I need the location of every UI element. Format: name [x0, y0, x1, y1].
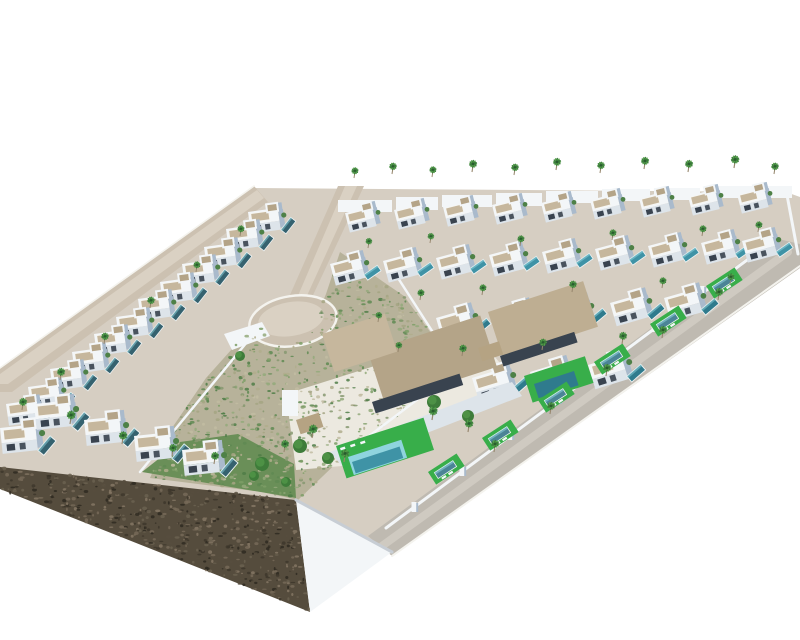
texture-dot [255, 428, 257, 430]
texture-dot [309, 341, 312, 343]
texture-dot [263, 477, 266, 480]
texture-dot [171, 490, 175, 491]
texture-dot [247, 524, 249, 526]
texture-dot [131, 500, 135, 503]
texture-dot [258, 579, 262, 580]
texture-dot [91, 503, 95, 506]
texture-dot [82, 484, 85, 486]
texture-dot [339, 312, 342, 315]
texture-dot [294, 372, 296, 375]
texture-dot [246, 434, 250, 436]
texture-dot [300, 391, 302, 392]
texture-dot [211, 520, 213, 523]
texture-dot [314, 382, 317, 383]
texture-dot [208, 557, 210, 559]
texture-dot [232, 412, 235, 414]
texture-dot [265, 522, 268, 524]
texture-dot [236, 458, 239, 461]
texture-dot [337, 314, 339, 316]
texture-dot [251, 395, 254, 397]
texture-dot [359, 286, 362, 289]
texture-dot [402, 405, 406, 406]
texture-dot [194, 479, 196, 481]
texture-dot [251, 413, 256, 416]
texture-dot [415, 312, 418, 313]
texture-dot [251, 505, 256, 507]
palm-crown [214, 455, 217, 458]
texture-dot [260, 535, 265, 538]
texture-dot [254, 552, 258, 553]
texture-dot [243, 442, 247, 445]
texture-dot [256, 359, 258, 360]
texture-dot [208, 377, 210, 379]
texture-dot [66, 508, 68, 512]
texture-dot [243, 404, 245, 407]
texture-dot [130, 523, 134, 526]
texture-dot [183, 520, 186, 523]
texture-dot [235, 522, 239, 524]
texture-dot [275, 511, 277, 514]
texture-dot [377, 291, 380, 293]
texture-dot [194, 518, 197, 520]
texture-dot [285, 561, 288, 563]
texture-dot [289, 492, 291, 493]
texture-dot [204, 407, 208, 410]
texture-dot [377, 424, 379, 426]
texture-dot [190, 406, 192, 408]
texture-dot [291, 556, 294, 558]
texture-dot [141, 483, 145, 484]
texture-dot [84, 490, 89, 493]
palm-crown [472, 163, 475, 166]
texture-dot [180, 534, 184, 537]
texture-dot [256, 395, 259, 398]
texture-dot [218, 535, 223, 537]
texture-dot [242, 375, 245, 378]
texture-dot [308, 411, 310, 414]
texture-dot [257, 423, 262, 426]
texture-dot [232, 417, 234, 419]
texture-dot [17, 485, 19, 486]
texture-dot [67, 506, 71, 507]
texture-dot [68, 474, 72, 477]
texture-dot [338, 310, 342, 312]
texture-dot [230, 560, 233, 563]
texture-dot [24, 496, 28, 498]
texture-dot [340, 395, 345, 397]
texture-dot [404, 333, 408, 335]
texture-dot [266, 383, 270, 384]
texture-dot [128, 498, 133, 499]
texture-dot [233, 371, 236, 374]
tree-highlight [256, 458, 265, 467]
texture-dot [234, 478, 236, 479]
palm-crown [122, 434, 125, 437]
texture-dot [337, 292, 340, 295]
texture-dot [266, 438, 270, 441]
texture-dot [256, 437, 260, 438]
texture-dot [358, 281, 361, 284]
texture-dot [159, 493, 161, 495]
texture-dot [247, 423, 250, 426]
texture-dot [177, 558, 179, 560]
texture-dot [282, 360, 285, 362]
texture-dot [242, 472, 246, 475]
texture-dot [233, 500, 235, 503]
palm-crown [432, 169, 434, 171]
texture-dot [163, 501, 166, 504]
texture-dot [153, 470, 155, 472]
texture-dot [225, 434, 227, 437]
texture-dot [193, 476, 196, 478]
texture-dot [85, 521, 88, 523]
texture-dot [240, 434, 243, 437]
texture-dot [213, 499, 218, 501]
pillar-body [412, 502, 417, 512]
texture-dot [247, 395, 249, 397]
texture-dot [277, 359, 280, 361]
texture-dot [297, 542, 301, 544]
texture-dot [244, 578, 247, 579]
texture-dot [272, 560, 274, 561]
texture-dot [415, 325, 419, 327]
palm-crown [550, 405, 553, 408]
texture-dot [264, 345, 267, 346]
texture-dot [215, 543, 217, 546]
texture-dot [191, 511, 196, 514]
texture-dot [13, 471, 18, 473]
palm-crown [482, 287, 484, 289]
texture-dot [233, 545, 235, 547]
texture-dot [159, 541, 163, 542]
texture-dot [197, 431, 200, 432]
texture-dot [291, 593, 293, 596]
texture-dot [261, 513, 264, 515]
texture-dot [21, 489, 24, 492]
texture-dot [295, 555, 299, 557]
texture-dot [185, 499, 187, 501]
texture-dot [244, 560, 246, 563]
texture-dot [131, 482, 136, 485]
texture-dot [323, 428, 326, 430]
texture-dot [147, 510, 151, 513]
palm-crown [468, 422, 471, 425]
texture-dot [197, 506, 199, 507]
texture-dot [318, 430, 321, 432]
texture-dot [75, 477, 77, 480]
texture-dot [1, 488, 4, 490]
texture-dot [267, 352, 270, 354]
texture-dot [32, 484, 36, 487]
texture-dot [198, 404, 202, 405]
texture-dot [241, 417, 245, 419]
texture-dot [314, 405, 317, 408]
texture-dot [278, 403, 282, 405]
texture-dot [87, 513, 92, 515]
texture-dot [358, 303, 360, 305]
texture-dot [9, 491, 11, 495]
villa-window [140, 452, 149, 459]
texture-dot [196, 549, 198, 552]
texture-dot [10, 487, 15, 489]
texture-dot [259, 401, 264, 404]
texture-dot [193, 505, 196, 507]
palm-crown [284, 443, 287, 446]
texture-dot [236, 559, 240, 560]
texture-dot [332, 316, 334, 317]
texture-dot [282, 388, 284, 390]
texture-dot [356, 290, 360, 291]
texture-dot [257, 530, 259, 532]
texture-dot [79, 489, 82, 490]
texture-dot [271, 437, 275, 440]
texture-dot [153, 538, 156, 540]
texture-dot [232, 364, 235, 367]
texture-dot [251, 519, 254, 521]
texture-dot [215, 560, 218, 562]
texture-dot [400, 304, 403, 307]
texture-dot [378, 421, 381, 423]
texture-dot [265, 540, 268, 543]
texture-dot [238, 583, 242, 585]
texture-dot [304, 471, 307, 472]
texture-dot [272, 571, 274, 575]
texture-dot [277, 585, 280, 587]
texture-dot [269, 449, 271, 450]
texture-dot [263, 432, 265, 434]
garden-tree [235, 351, 245, 361]
texture-dot [183, 493, 188, 497]
villa-upper-roof [91, 344, 101, 351]
texture-dot [327, 467, 329, 468]
texture-dot [114, 517, 118, 519]
villa-window [243, 241, 249, 247]
texture-dot [259, 328, 263, 330]
palm-crown [622, 335, 625, 338]
texture-dot [261, 418, 264, 421]
texture-dot [217, 387, 221, 390]
texture-dot [175, 470, 178, 472]
palm-crown [432, 410, 435, 413]
texture-dot [312, 460, 316, 461]
texture-dot [386, 297, 390, 300]
texture-dot [279, 453, 283, 454]
texture-dot [323, 367, 327, 369]
texture-dot [199, 474, 202, 477]
texture-dot [211, 554, 216, 556]
texture-dot [253, 494, 255, 497]
texture-dot [306, 379, 308, 382]
texture-dot [249, 415, 252, 418]
texture-dot [249, 556, 252, 558]
texture-dot [399, 407, 402, 409]
texture-dot [270, 431, 273, 433]
texture-dot [234, 492, 238, 495]
texture-dot [274, 445, 278, 447]
palm-crown [420, 292, 422, 294]
texture-dot [229, 502, 231, 503]
texture-dot [209, 495, 212, 497]
texture-dot [33, 494, 36, 496]
texture-dot [207, 379, 211, 380]
villa-window [40, 420, 49, 427]
texture-dot [227, 376, 231, 377]
texture-dot [251, 460, 253, 461]
texture-dot [218, 410, 221, 412]
texture-dot [143, 531, 146, 533]
texture-dot [385, 313, 389, 314]
texture-dot [104, 485, 106, 488]
texture-dot [249, 349, 251, 351]
texture-dot [272, 382, 276, 385]
texture-dot [301, 494, 305, 497]
texture-dot [251, 588, 255, 589]
texture-dot [242, 516, 246, 519]
texture-dot [326, 444, 329, 445]
texture-dot [244, 526, 247, 528]
texture-dot [238, 493, 241, 494]
texture-dot [370, 390, 373, 393]
texture-dot [152, 497, 155, 500]
texture-dot [208, 570, 212, 573]
texture-dot [276, 574, 280, 577]
texture-dot [252, 553, 254, 555]
texture-dot [197, 439, 201, 442]
texture-dot [384, 307, 387, 309]
texture-dot [279, 597, 281, 600]
texture-dot [202, 423, 205, 426]
texture-dot [277, 476, 280, 478]
texture-dot [321, 316, 323, 318]
texture-dot [396, 408, 399, 409]
texture-dot [251, 571, 255, 574]
texture-dot [352, 309, 354, 311]
texture-dot [236, 527, 240, 530]
texture-dot [144, 539, 148, 540]
texture-dot [338, 417, 342, 420]
villa-upper-roof [47, 379, 57, 386]
texture-dot [232, 507, 236, 509]
texture-dot [288, 433, 290, 436]
palm-crown [520, 238, 522, 240]
texture-dot [265, 496, 268, 500]
texture-dot [138, 522, 141, 525]
texture-dot [363, 306, 366, 309]
texture-dot [349, 315, 352, 316]
texture-dot [66, 502, 68, 505]
texture-dot [216, 518, 219, 521]
texture-dot [178, 510, 182, 512]
texture-dot [254, 500, 259, 502]
texture-dot [180, 558, 183, 560]
texture-dot [315, 388, 319, 391]
palm-crown [514, 166, 516, 168]
palm-crown [150, 299, 152, 301]
texture-dot [233, 571, 238, 572]
texture-dot [353, 405, 358, 407]
villa-upper-roof [245, 221, 255, 228]
texture-dot [242, 545, 244, 547]
texture-dot [336, 375, 338, 378]
texture-dot [95, 523, 99, 525]
texture-dot [345, 387, 350, 389]
texture-dot [297, 537, 301, 538]
texture-dot [402, 311, 404, 313]
wall-pillar [412, 502, 419, 512]
texture-dot [168, 501, 170, 505]
texture-dot [153, 485, 157, 486]
texture-dot [385, 417, 388, 419]
texture-dot [403, 327, 405, 328]
texture-dot [137, 530, 140, 532]
texture-dot [247, 541, 250, 543]
texture-dot [49, 480, 51, 483]
texture-dot [329, 298, 332, 299]
texture-dot [409, 334, 413, 335]
villa-window [53, 419, 60, 426]
palm-crown [378, 314, 380, 316]
texture-dot [145, 498, 148, 501]
texture-dot [405, 330, 410, 333]
texture-dot [296, 573, 298, 575]
texture-dot [384, 285, 388, 288]
texture-dot [277, 418, 280, 420]
texture-dot [242, 485, 247, 488]
texture-dot [274, 414, 277, 416]
texture-dot [286, 504, 290, 506]
texture-dot [222, 532, 227, 534]
texture-dot [53, 502, 56, 504]
texture-dot [264, 425, 268, 427]
texture-dot [339, 317, 341, 319]
texture-dot [259, 408, 262, 410]
texture-dot [257, 370, 259, 373]
texture-dot [265, 534, 269, 536]
texture-dot [382, 299, 386, 301]
texture-dot [196, 411, 199, 413]
texture-dot [258, 454, 262, 456]
palm-crown [542, 341, 544, 343]
texture-dot [257, 483, 261, 486]
texture-dot [273, 524, 275, 526]
texture-dot [323, 394, 326, 397]
villa-window [265, 224, 271, 230]
texture-dot [186, 514, 190, 518]
texture-dot [217, 401, 221, 404]
texture-dot [295, 487, 300, 488]
texture-dot [290, 582, 295, 583]
texture-dot [247, 364, 251, 367]
texture-dot [404, 300, 406, 302]
texture-dot [271, 367, 276, 368]
texture-dot [242, 533, 247, 535]
texture-dot [130, 514, 132, 515]
palm-crown [774, 165, 776, 167]
texture-dot [230, 550, 233, 552]
tree-highlight [463, 411, 470, 418]
texture-dot [309, 478, 311, 481]
texture-dot [235, 403, 238, 405]
texture-dot [283, 471, 287, 472]
texture-dot [193, 502, 195, 504]
texture-dot [223, 574, 225, 576]
texture-dot [316, 375, 320, 376]
texture-dot [191, 480, 193, 482]
texture-dot [403, 296, 407, 299]
texture-dot [329, 365, 332, 366]
texture-dot [166, 535, 171, 539]
texture-dot [275, 554, 279, 555]
